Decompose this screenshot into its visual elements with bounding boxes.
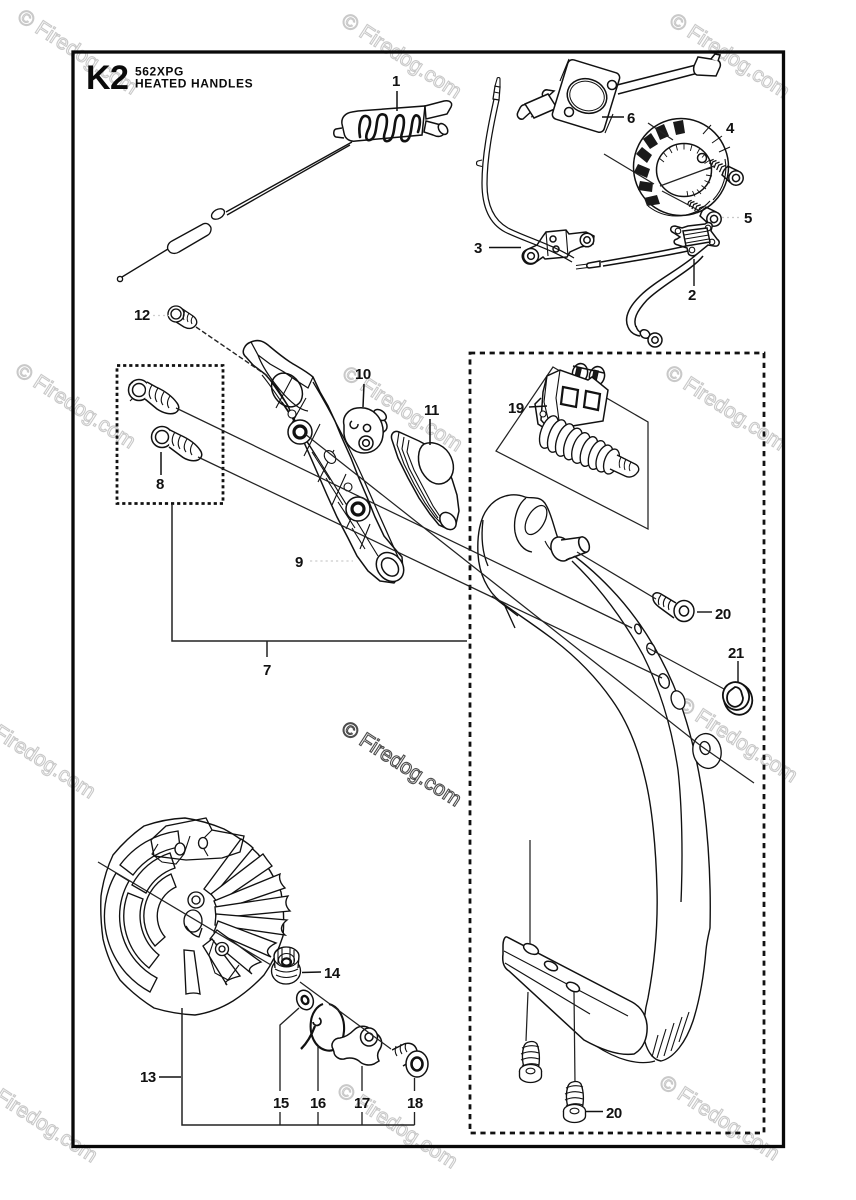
svg-text:10: 10 bbox=[355, 366, 371, 383]
svg-text:17: 17 bbox=[354, 1095, 370, 1112]
svg-text:HEATED HANDLES: HEATED HANDLES bbox=[135, 77, 253, 91]
svg-text:20: 20 bbox=[715, 606, 731, 623]
svg-text:1: 1 bbox=[392, 73, 400, 90]
svg-text:8: 8 bbox=[156, 476, 164, 493]
svg-text:21: 21 bbox=[728, 645, 744, 662]
svg-text:9: 9 bbox=[295, 554, 303, 571]
svg-text:12: 12 bbox=[134, 307, 150, 324]
svg-text:© Firedog.com: © Firedog.com bbox=[337, 9, 465, 103]
svg-text:15: 15 bbox=[273, 1095, 289, 1112]
svg-text:11: 11 bbox=[424, 402, 439, 419]
svg-text:© Firedog.com: © Firedog.com bbox=[333, 1079, 461, 1173]
svg-text:18: 18 bbox=[407, 1095, 423, 1112]
svg-text:4: 4 bbox=[726, 120, 735, 137]
svg-text:5: 5 bbox=[744, 210, 752, 227]
svg-text:© Firedog.com: © Firedog.com bbox=[0, 709, 100, 803]
svg-text:13: 13 bbox=[140, 1069, 156, 1086]
svg-text:© Firedog.com: © Firedog.com bbox=[0, 1073, 102, 1167]
svg-text:© Firedog.com: © Firedog.com bbox=[661, 361, 789, 455]
svg-text:14: 14 bbox=[324, 965, 341, 982]
svg-text:20: 20 bbox=[606, 1105, 622, 1122]
svg-text:3: 3 bbox=[474, 240, 482, 257]
svg-text:16: 16 bbox=[310, 1095, 326, 1112]
svg-text:19: 19 bbox=[508, 400, 524, 417]
svg-text:© Firedog.com: © Firedog.com bbox=[11, 359, 139, 453]
svg-text:2: 2 bbox=[688, 287, 696, 304]
svg-text:K2: K2 bbox=[86, 59, 128, 97]
svg-text:© Firedog.com: © Firedog.com bbox=[665, 9, 793, 103]
svg-text:© Firedog.com: © Firedog.com bbox=[337, 717, 465, 811]
svg-text:7: 7 bbox=[263, 662, 271, 679]
svg-text:6: 6 bbox=[627, 110, 635, 127]
